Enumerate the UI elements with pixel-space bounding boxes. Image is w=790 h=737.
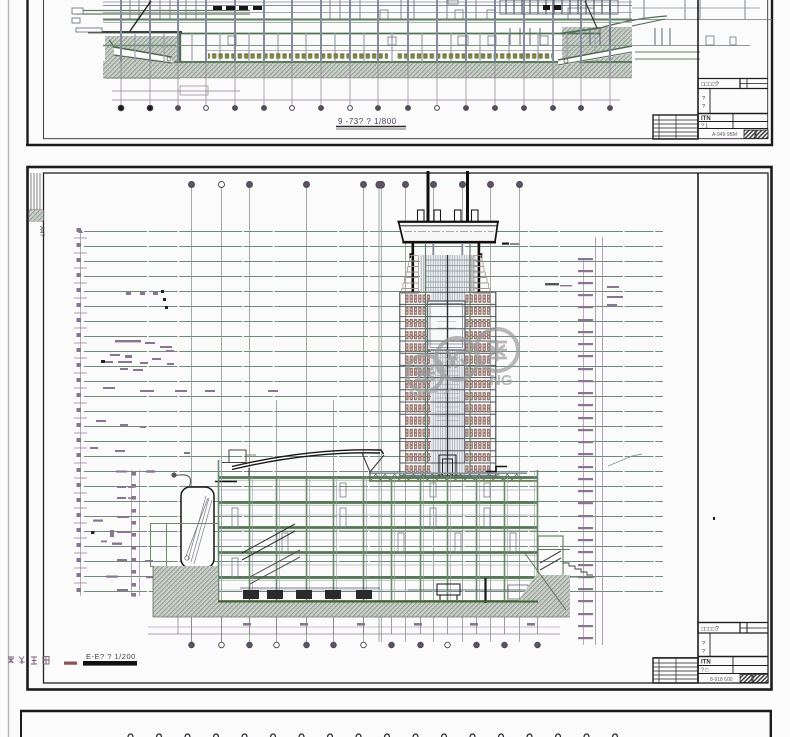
svg-text:ITN: ITN xyxy=(701,660,711,666)
svg-text:? □: ? □ xyxy=(701,668,708,674)
svg-text:?: ? xyxy=(702,96,705,102)
svg-text:?: ? xyxy=(702,641,705,647)
svg-text:ITN: ITN xyxy=(701,116,711,122)
svg-text:E-E? ? 1/200: E-E? ? 1/200 xyxy=(86,652,136,661)
svg-text:?: ? xyxy=(702,104,705,110)
svg-text:□□□□?: □□□□? xyxy=(701,82,719,88)
svg-text:? 1: ? 1 xyxy=(701,124,708,130)
svg-text:8-918 600: 8-918 600 xyxy=(710,677,733,683)
svg-text:□□□□?: □□□□? xyxy=(701,627,719,633)
svg-text:NG: NG xyxy=(490,372,513,389)
svg-text:A4?: A4? xyxy=(38,226,44,237)
svg-text:9 -73? ? 1/800: 9 -73? ? 1/800 xyxy=(338,117,397,126)
svg-text:?: ? xyxy=(702,649,705,655)
svg-text:A-949 9BM: A-949 9BM xyxy=(712,132,737,138)
